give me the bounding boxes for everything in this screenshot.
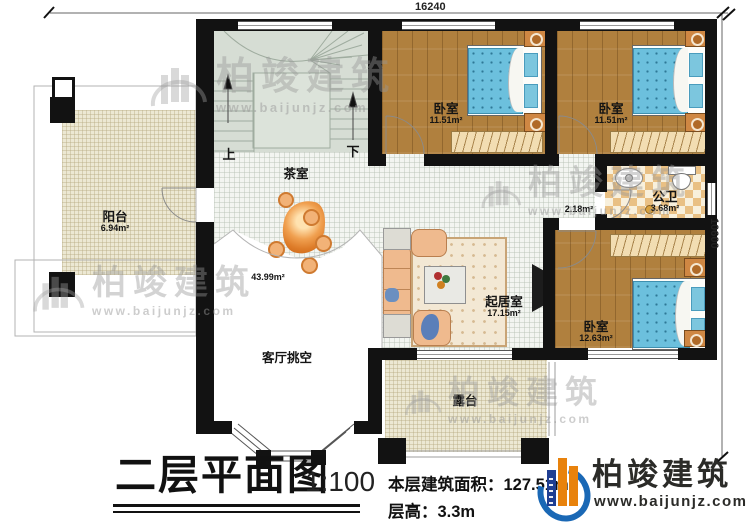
side-table [383,314,411,338]
logo-name: 柏竣建筑 [592,459,732,490]
window-bedroom1 [402,21,495,30]
logo-building-icon [547,470,556,506]
balcony-pillar-cap [52,77,75,100]
balcony-floor [62,110,196,275]
balcony-pillar-top [50,97,75,123]
stone-dot [315,235,332,252]
wall-bedroom3-top-left [543,218,559,230]
balcony-label: 阳台 [102,211,127,224]
logo [538,454,588,518]
hall-area: 43.99m² [251,273,285,282]
nightstand [685,113,707,132]
balcony-area: 6.94m² [101,224,130,233]
wall-bedroom1-bottom-right [424,154,559,166]
wall-bathroom-left-upper [595,154,607,192]
bedroom2-area: 11.51m² [594,116,627,125]
dimension-top: 16240 [415,2,446,13]
logo-building-icon [558,458,567,506]
wall-bedroom2-bottom [597,154,717,166]
bedroom3-area: 12.63m² [579,334,613,343]
plan-scale: 1:100 [305,466,375,498]
nightstand [684,258,706,277]
bedroom1-area: 11.51m² [429,116,462,125]
terrace-pillar-left [378,438,406,464]
coffee-table [424,266,466,304]
corridor-area: 2.18m² [565,205,594,214]
living-room-label: 起居室 [485,296,523,309]
wall-bay-right [354,421,380,434]
window-stairwell [238,21,332,30]
logo-building-icon [569,466,578,506]
wall-bedrooms-divider [545,27,557,154]
window-bedroom3 [588,350,678,359]
wall-left-upper [196,19,214,188]
wall-bottom-c [678,348,717,360]
stone-dot [303,209,320,226]
flower-decor [434,272,442,280]
bathroom-label: 公卫 [652,191,677,204]
logo-url: www.baijunjz.com [594,494,747,509]
nightstand [684,330,706,347]
bedroom3-label: 卧室 [583,321,608,334]
terrace-label: 露台 [452,395,477,408]
wardrobe [610,234,707,257]
side-table [383,228,411,250]
wardrobe [451,131,543,153]
bed [632,45,707,116]
void-label: 客厅挑空 [262,352,312,365]
wall-bedroom3-top-right [597,218,717,230]
stone-dot [278,192,294,208]
floor-plan: 上 下 [0,0,750,524]
stone-dot [268,241,285,258]
bed [467,45,542,116]
wardrobe [610,131,707,153]
cushion [385,288,399,302]
window-bedroom2 [580,21,674,30]
plan-title: 二层平面图 [115,452,330,499]
tea-room-label: 茶室 [283,168,308,181]
stairs-up-label: 上 [222,148,235,161]
balcony-pillar-bottom [49,272,75,297]
title-underline [113,511,360,513]
wall-bottom-b [512,348,588,360]
wall-stair-bedroom1 [368,27,382,166]
stairs-down-label: 下 [346,145,359,158]
bedroom1-label: 卧室 [433,103,458,116]
window-bathroom [707,183,716,215]
staircase [214,31,368,152]
armchair [411,229,447,257]
wall-bedroom3-left [543,230,555,352]
window-terrace-door [417,350,512,359]
watermark-url: www.baijunjz.com [92,305,256,317]
wall-bedroom1-bottom-left [368,154,386,166]
wall-left-lower [196,222,214,425]
wall-bay-left [196,421,232,434]
sink-drain [625,174,633,182]
floor-height-text: 层高：3.3m [388,498,475,522]
nightstand [524,113,546,132]
title-underline [113,504,360,507]
bathroom-area: 3.68m² [651,204,680,213]
bedroom2-label: 卧室 [598,103,623,116]
dimension-right: 10600 [708,218,719,249]
living-room-area: 17.15m² [487,309,521,318]
stone-dot [301,257,318,274]
